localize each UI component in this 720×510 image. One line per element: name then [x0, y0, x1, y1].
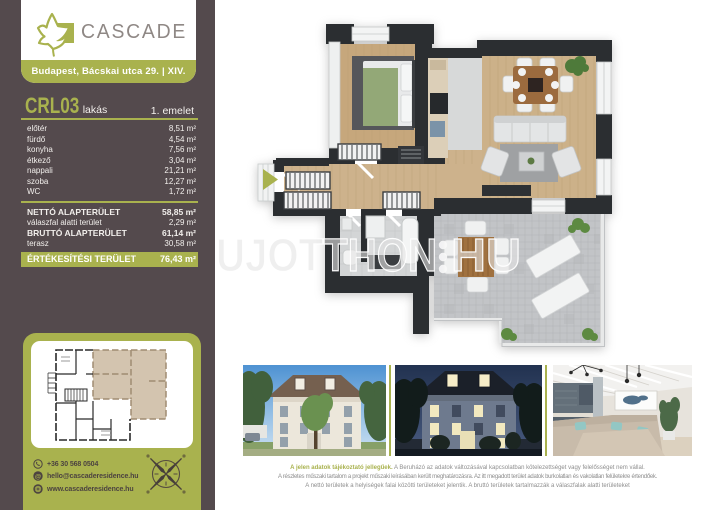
svg-text:HU: HU	[451, 229, 521, 281]
svg-text:UJOTTHON: UJOTTHON	[216, 229, 437, 281]
svg-text:@: @	[35, 473, 41, 480]
